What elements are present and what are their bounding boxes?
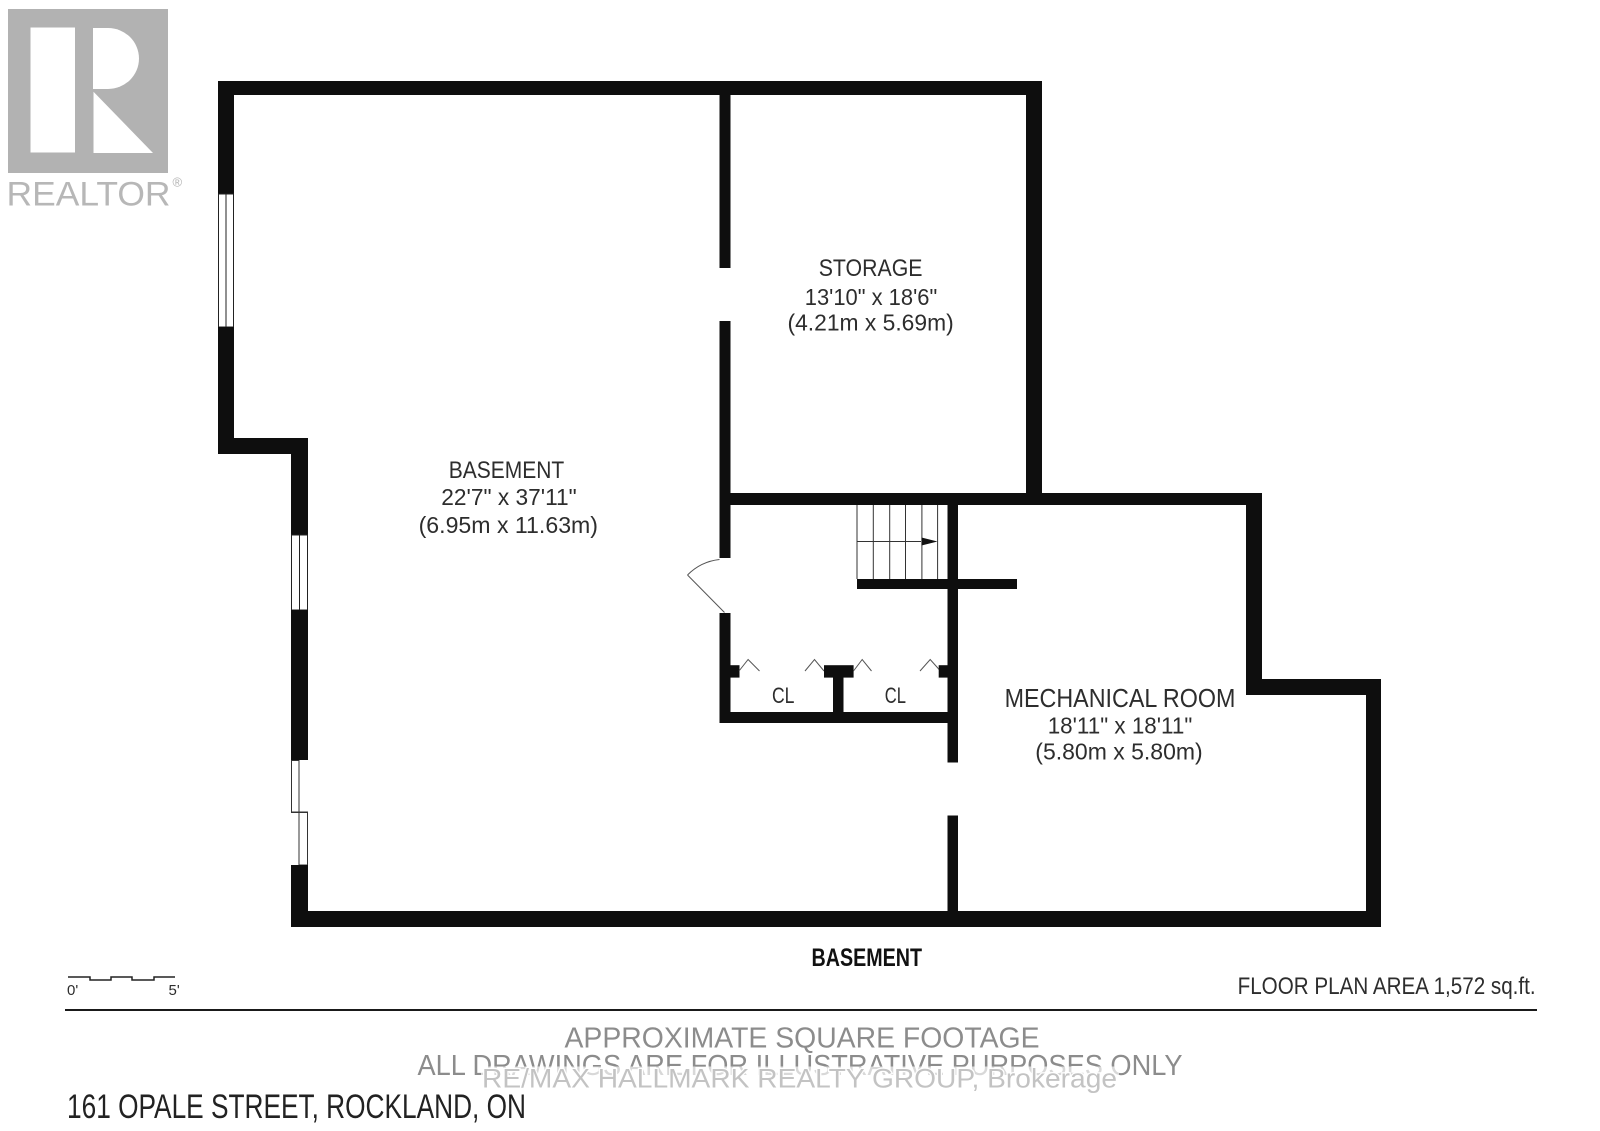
svg-text:CL: CL — [772, 683, 795, 708]
svg-text:BASEMENT: BASEMENT — [812, 944, 923, 972]
svg-text:RE/MAX HALLMARK REALTY GROUP,: RE/MAX HALLMARK REALTY GROUP, Brokerage — [482, 1064, 1117, 1094]
svg-text:®: ® — [173, 175, 183, 190]
svg-text:BASEMENT: BASEMENT — [449, 457, 565, 484]
svg-text:5': 5' — [169, 982, 180, 999]
svg-text:13'10" x 18'6": 13'10" x 18'6" — [805, 284, 938, 310]
svg-text:22'7" x 37'11": 22'7" x 37'11" — [441, 484, 576, 510]
svg-text:18'11" x 18'11": 18'11" x 18'11" — [1048, 713, 1193, 739]
svg-text:FLOOR PLAN AREA 1,572 sq.ft.: FLOOR PLAN AREA 1,572 sq.ft. — [1238, 973, 1536, 1000]
svg-text:STORAGE: STORAGE — [819, 255, 923, 282]
svg-text:CL: CL — [885, 683, 906, 708]
svg-text:(4.21m x 5.69m): (4.21m x 5.69m) — [787, 310, 953, 336]
svg-text:0': 0' — [67, 982, 78, 999]
svg-text:MECHANICAL ROOM: MECHANICAL ROOM — [1005, 683, 1236, 713]
svg-text:(6.95m x 11.63m): (6.95m x 11.63m) — [419, 512, 598, 538]
svg-text:161 OPALE STREET, ROCKLAND, ON: 161 OPALE STREET, ROCKLAND, ON — [67, 1088, 526, 1126]
svg-text:REALTOR: REALTOR — [7, 176, 171, 214]
svg-text:(5.80m x 5.80m): (5.80m x 5.80m) — [1035, 739, 1202, 765]
